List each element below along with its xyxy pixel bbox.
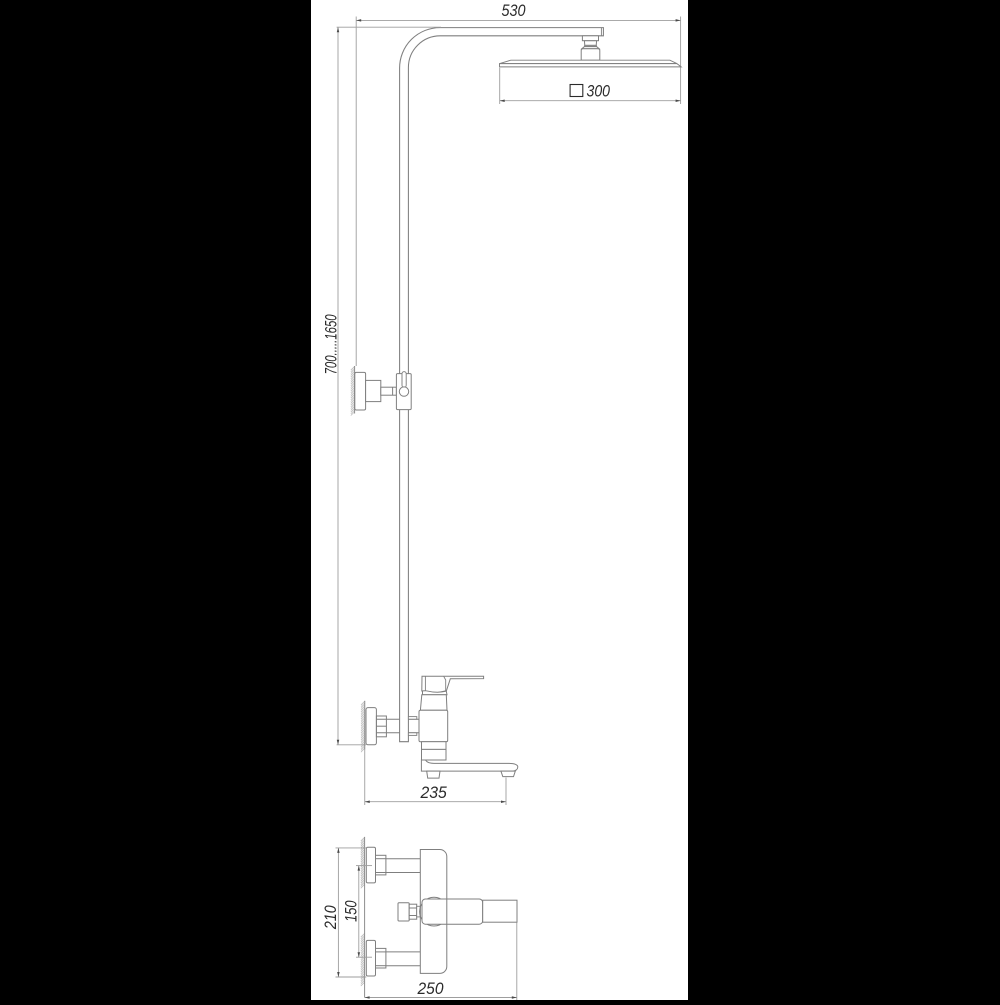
svg-text:210: 210	[321, 905, 340, 930]
svg-text:530: 530	[502, 2, 527, 20]
svg-text:235: 235	[419, 784, 447, 802]
svg-text:300: 300	[587, 83, 611, 101]
svg-text:250: 250	[417, 980, 445, 998]
svg-text:700.....1650: 700.....1650	[321, 314, 340, 374]
svg-text:150: 150	[342, 900, 361, 922]
